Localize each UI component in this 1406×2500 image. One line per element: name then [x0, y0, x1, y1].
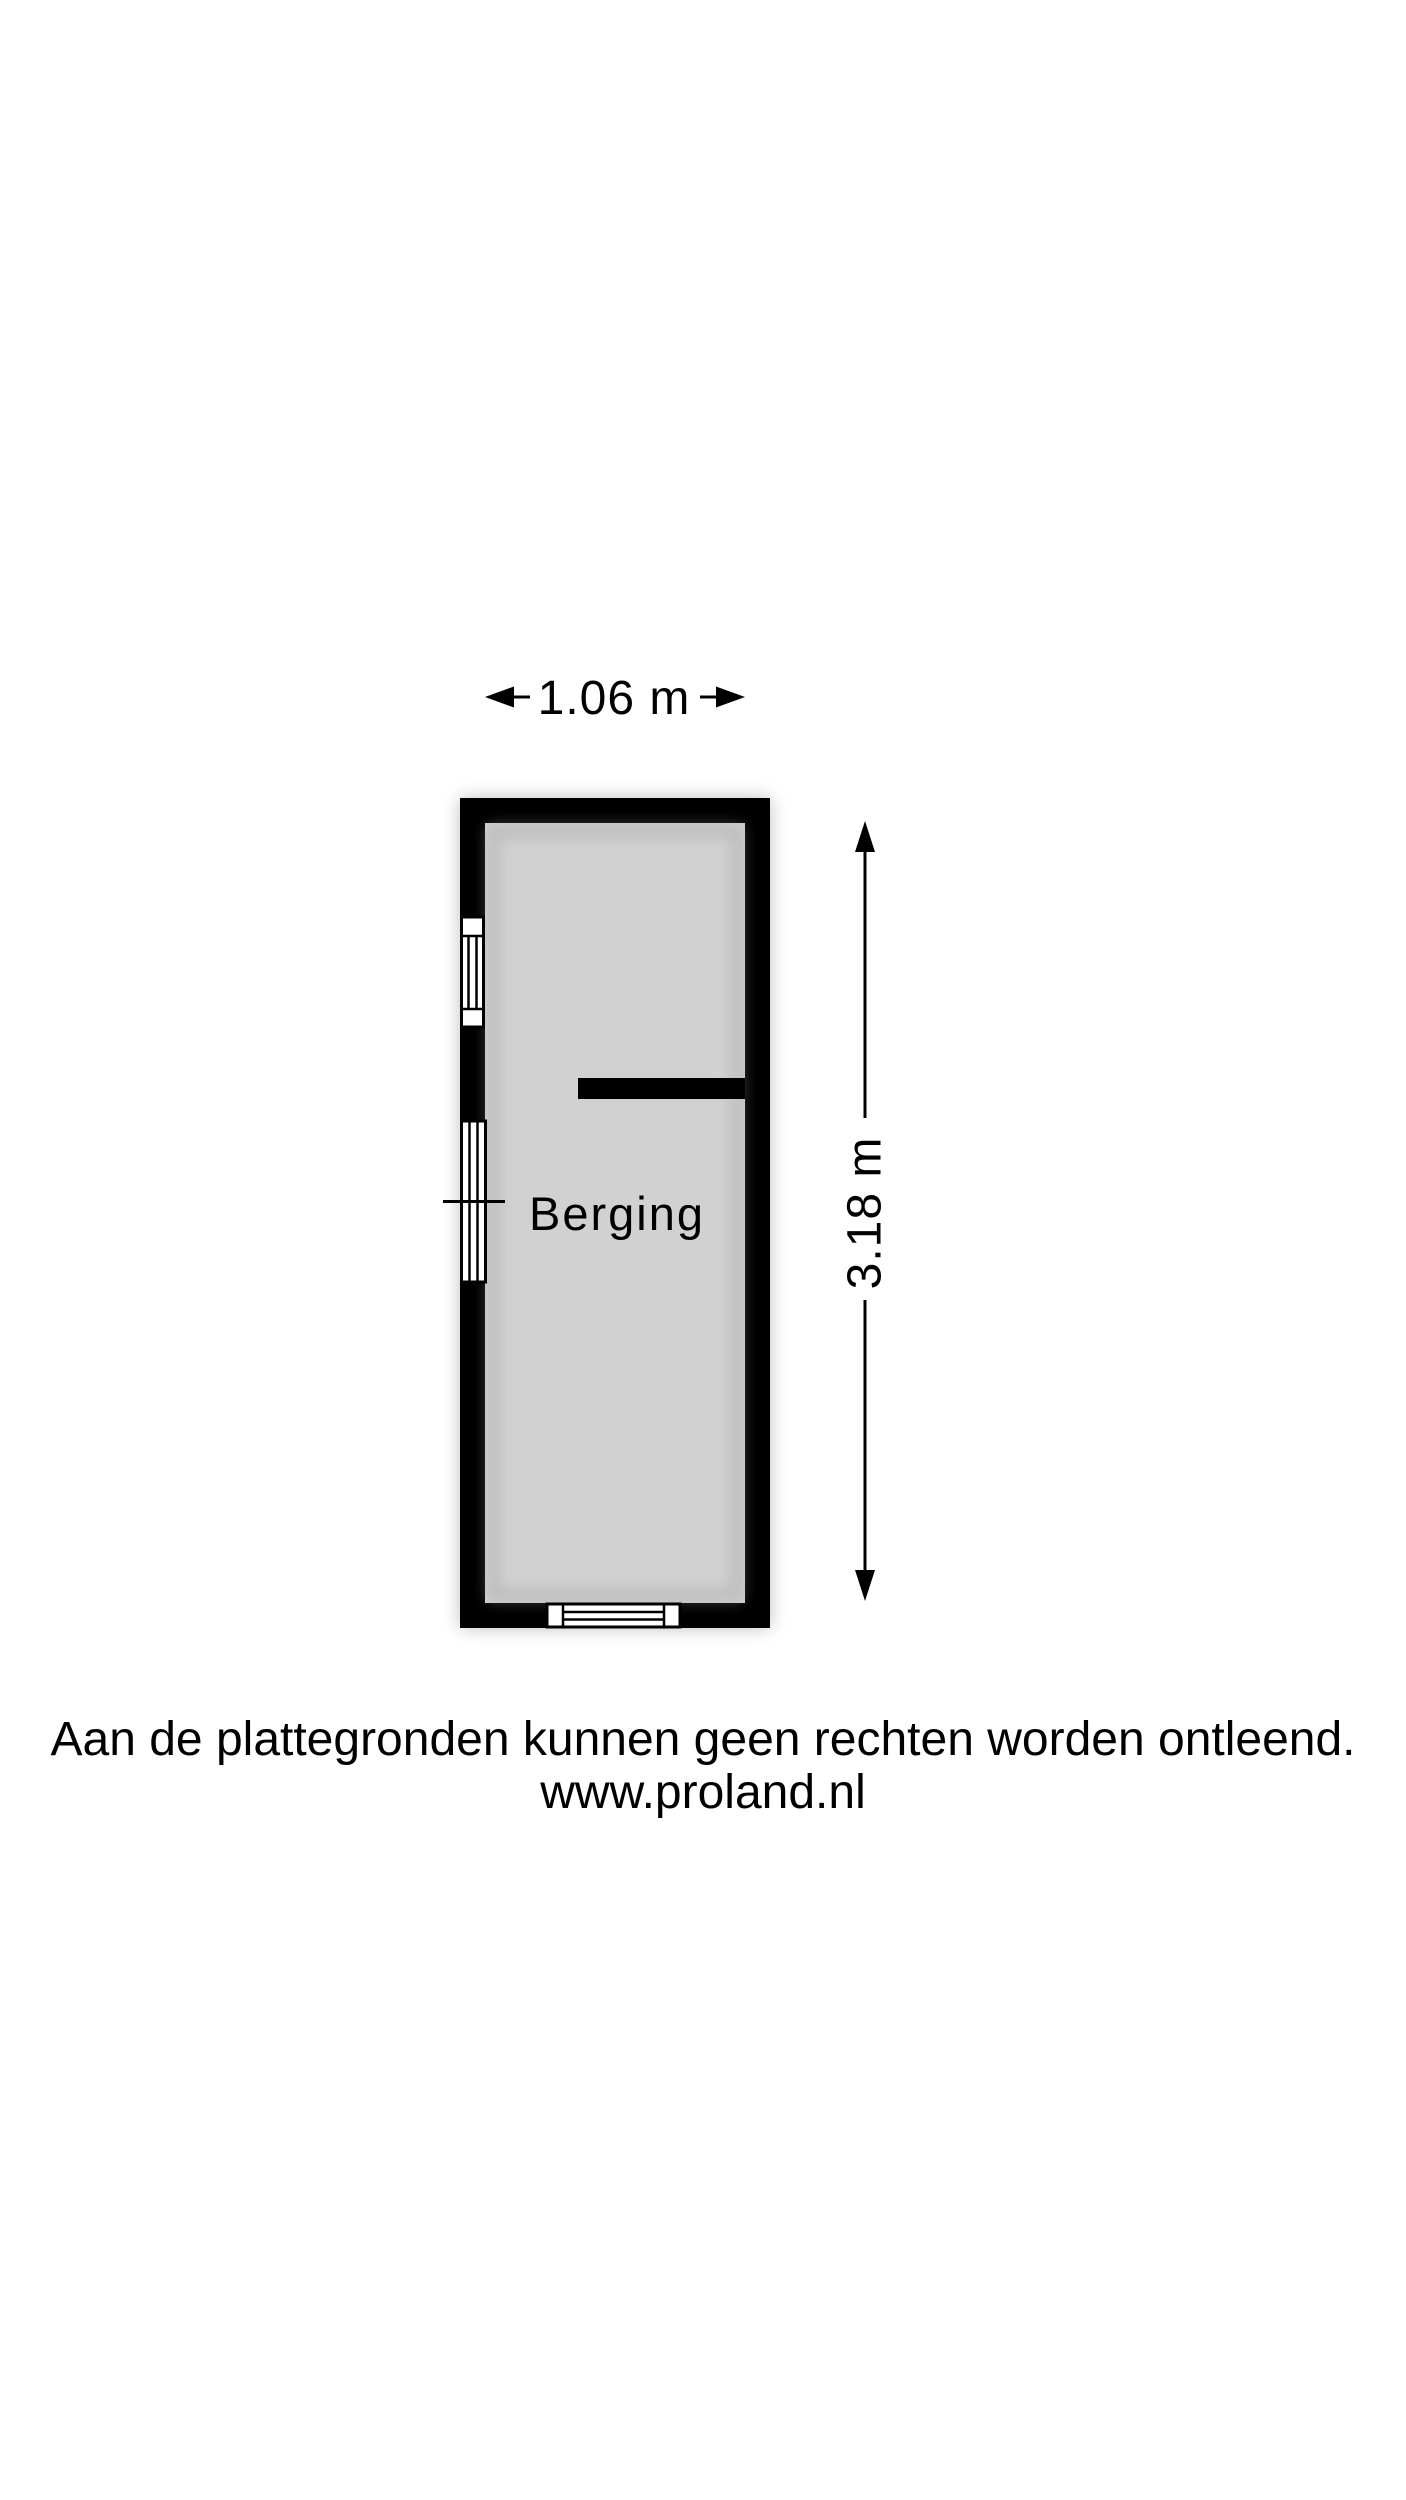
- interior-wall: [578, 1078, 745, 1099]
- disclaimer-text: Aan de plattegronden kunnen geen rechten…: [0, 1713, 1406, 1766]
- width-dimension-label: 1.06 m: [538, 672, 691, 725]
- height-arrow-down-icon: [855, 1570, 875, 1601]
- floorplan-page: 1.06 m 3.18 m Berging Aan de plattegrond…: [0, 0, 1406, 2500]
- door-frame: [547, 1604, 680, 1627]
- height-dimension: 3.18 m: [839, 821, 892, 1601]
- height-dimension-label: 3.18 m: [839, 1137, 892, 1290]
- width-arrow-left-icon: [485, 687, 514, 708]
- window-upper-left: [461, 917, 484, 1027]
- window-frame: [462, 917, 484, 1027]
- room-label: Berging: [529, 1187, 705, 1240]
- floorplan-drawing: 1.06 m 3.18 m Berging: [0, 0, 1406, 1700]
- door-bottom: [547, 1604, 680, 1627]
- width-arrow-right-icon: [716, 687, 745, 708]
- website-text: www.proland.nl: [0, 1766, 1406, 1819]
- width-dimension: 1.06 m: [485, 672, 745, 725]
- height-arrow-up-icon: [855, 821, 875, 852]
